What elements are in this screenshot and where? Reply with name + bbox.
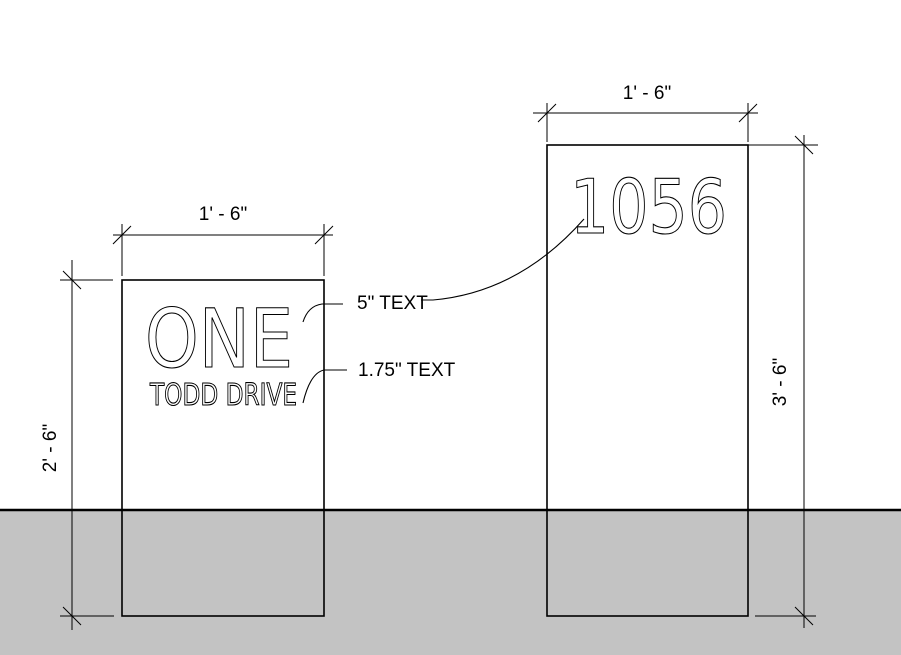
right-sign-number-text: 1056 xyxy=(570,163,727,251)
drawing-linework: ONE TODD DRIVE 1056 xyxy=(0,0,901,655)
left-sign-sub-text: TODD DRIVE xyxy=(149,378,297,413)
note-5in-text: 5" TEXT xyxy=(357,293,428,315)
left-width-dim-label: 1' - 6" xyxy=(199,204,247,226)
leader-5in-to-one xyxy=(303,304,343,322)
left-height-dim-label: 2' - 6" xyxy=(40,424,62,472)
leader-5in-to-1056 xyxy=(421,219,584,300)
left-sign-main-text: ONE xyxy=(145,293,293,387)
right-height-dim-label: 3' - 6" xyxy=(770,358,792,406)
leader-175in-to-todd-drive xyxy=(303,370,347,403)
ground-fill xyxy=(0,511,901,655)
left-width-dimension xyxy=(113,224,333,276)
right-width-dim-label: 1' - 6" xyxy=(623,83,671,105)
sign-elevation-drawing: ONE TODD DRIVE 1056 1' - 6" 2' - 6" 1' -… xyxy=(0,0,901,655)
right-width-dimension xyxy=(533,103,758,142)
note-175in-text: 1.75" TEXT xyxy=(358,360,455,382)
